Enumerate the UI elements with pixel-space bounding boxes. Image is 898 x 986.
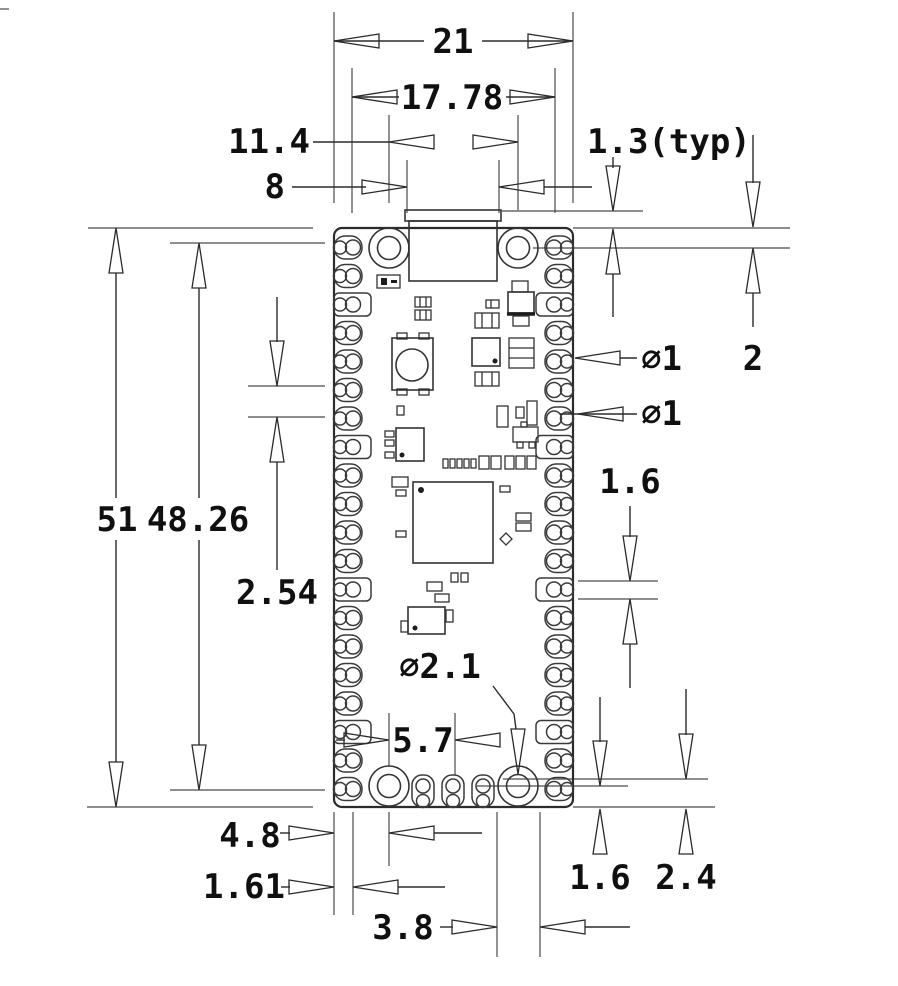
label-castellation-dia: ∅1 (641, 339, 682, 379)
pcb-dimension-drawing: 21 17.78 11.4 8 1.3(typ) 51 48.26 2.54 ∅… (0, 0, 898, 986)
dim-castellation-dia (575, 351, 637, 365)
label-pin-row-span: 17.78 (401, 78, 503, 118)
dim-bottom-pad-depth (679, 689, 693, 854)
label-pad-width: 1.6 (599, 462, 660, 502)
label-usb-overhang: 1.3(typ) (587, 122, 751, 162)
label-hole-offset-x: 4.8 (219, 816, 280, 856)
label-usb-width: 8 (265, 167, 285, 207)
crystal (401, 607, 453, 634)
dim-usb-width (292, 180, 592, 194)
components (377, 275, 538, 634)
pin-pads-right (536, 236, 574, 801)
dim-top-edge-to-pin (746, 135, 760, 327)
label-bottom-pad-offset: 1.6 (569, 858, 630, 898)
dim-pad-width (623, 506, 637, 688)
label-pin-hole-dia: ∅1 (641, 394, 682, 434)
test-pad-row (443, 456, 536, 469)
inductor (509, 338, 534, 368)
usb-lip (405, 210, 501, 221)
label-bottom-pad-depth: 2.4 (655, 858, 716, 898)
usb-body (409, 221, 497, 281)
dim-usb-overhang (606, 157, 620, 317)
debug-pads-bottom (412, 775, 494, 808)
mounting-hole-top-right (498, 228, 538, 268)
small-part (397, 406, 404, 415)
flash-chip (385, 428, 424, 461)
small-ic (472, 338, 500, 366)
label-board-height: 51 (97, 500, 138, 540)
dim-pin-hole-dia (560, 407, 637, 421)
regulator (507, 281, 535, 326)
label-pin-pitch: 2.54 (236, 573, 318, 613)
label-pin-column-span: 48.26 (147, 500, 249, 540)
label-mounting-hole-dia: ∅2.1 (399, 647, 481, 687)
dim-mounting-hole-leader (493, 686, 525, 774)
dim-debug-pad-span (440, 920, 630, 934)
capacitor (415, 297, 499, 320)
label-debug-pad-span: 3.8 (372, 908, 433, 948)
mounting-hole-top-left (369, 228, 409, 268)
transistor (513, 422, 538, 448)
label-board-width: 21 (433, 22, 474, 62)
dim-hole-span (313, 135, 518, 149)
technical-drawing-page: 21 17.78 11.4 8 1.3(typ) 51 48.26 2.54 ∅… (0, 0, 898, 986)
label-pin-edge-offset: 1.61 (203, 867, 285, 907)
label-hole-to-debug-pad: 5.7 (392, 721, 453, 761)
bootsel-button (392, 333, 433, 395)
label-top-edge-to-pin: 2 (743, 339, 763, 379)
dim-bottom-pad-offset (593, 697, 607, 854)
dim-hole-offset-x (280, 826, 482, 840)
dimension-labels: 21 17.78 11.4 8 1.3(typ) 51 48.26 2.54 ∅… (97, 22, 764, 948)
dim-pin-edge-offset (281, 880, 445, 894)
capacitor-pair (475, 313, 499, 386)
label-hole-span: 11.4 (228, 122, 310, 162)
usb-connector (405, 210, 501, 281)
led (377, 275, 400, 288)
pcb-board (334, 210, 574, 808)
dim-pin-pitch (270, 297, 284, 570)
pin-pads-left (334, 236, 372, 801)
main-mcu-chip (413, 482, 493, 563)
mounting-hole-bottom-left (369, 766, 409, 806)
